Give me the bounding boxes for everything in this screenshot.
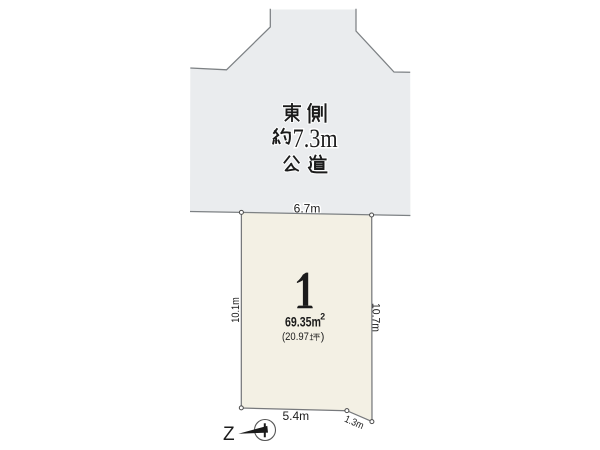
svg-text:69.35m: 69.35m: [285, 315, 321, 330]
svg-text:5.4m: 5.4m: [282, 409, 309, 423]
svg-text:7.3m: 7.3m: [293, 124, 338, 153]
svg-text:(20.97: (20.97: [282, 331, 309, 343]
svg-text:Z: Z: [223, 424, 235, 445]
svg-text:): ): [321, 331, 325, 343]
svg-text:2: 2: [320, 312, 325, 322]
svg-text:10.1m: 10.1m: [230, 297, 242, 323]
